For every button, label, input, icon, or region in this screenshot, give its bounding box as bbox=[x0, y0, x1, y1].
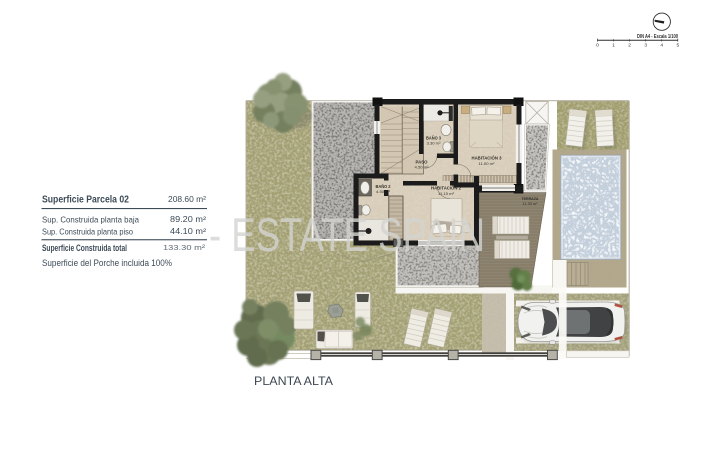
svg-text:4: 4 bbox=[660, 42, 663, 48]
svg-text:3.30 m²: 3.30 m² bbox=[427, 142, 442, 146]
svg-text:11.10 m²: 11.10 m² bbox=[438, 192, 455, 196]
svg-text:4.50 m²: 4.50 m² bbox=[415, 166, 430, 170]
svg-text:Sup. Construida planta piso: Sup. Construida planta piso bbox=[42, 227, 133, 237]
svg-text:BAÑO 3: BAÑO 3 bbox=[426, 136, 442, 141]
svg-text:3: 3 bbox=[644, 42, 647, 48]
svg-text:11.30 m²: 11.30 m² bbox=[523, 202, 539, 206]
svg-text:PASO: PASO bbox=[416, 160, 429, 165]
svg-text:1: 1 bbox=[612, 42, 615, 48]
svg-text:- ESTATE SPAIN: - ESTATE SPAIN bbox=[209, 208, 485, 261]
svg-text:0: 0 bbox=[596, 42, 599, 48]
svg-text:89.20 m²: 89.20 m² bbox=[170, 215, 206, 224]
svg-text:HABITACIÓN 3: HABITACIÓN 3 bbox=[472, 156, 503, 161]
svg-text:11.00 m²: 11.00 m² bbox=[479, 162, 496, 166]
svg-text:Superficie del Porche incluida: Superficie del Porche incluida 100% bbox=[42, 258, 172, 268]
svg-text:133.30 m²: 133.30 m² bbox=[163, 243, 206, 252]
svg-text:BAÑO 2: BAÑO 2 bbox=[376, 184, 392, 189]
svg-text:PLANTA ALTA: PLANTA ALTA bbox=[254, 376, 333, 388]
svg-text:TERRAZA: TERRAZA bbox=[522, 196, 539, 201]
svg-text:Superficie Construida total: Superficie Construida total bbox=[42, 243, 127, 253]
svg-text:Superficie Parcela 02: Superficie Parcela 02 bbox=[42, 194, 129, 206]
svg-text:208.60 m²: 208.60 m² bbox=[168, 194, 206, 204]
svg-text:5: 5 bbox=[676, 42, 679, 48]
svg-text:2: 2 bbox=[628, 42, 631, 48]
svg-text:44.10 m²: 44.10 m² bbox=[170, 227, 206, 236]
svg-text:Sup. Construida planta baja: Sup. Construida planta baja bbox=[42, 215, 139, 225]
svg-text:DIN A4 - Escala 1/100: DIN A4 - Escala 1/100 bbox=[637, 34, 678, 40]
svg-text:4.50 m²: 4.50 m² bbox=[376, 190, 391, 194]
